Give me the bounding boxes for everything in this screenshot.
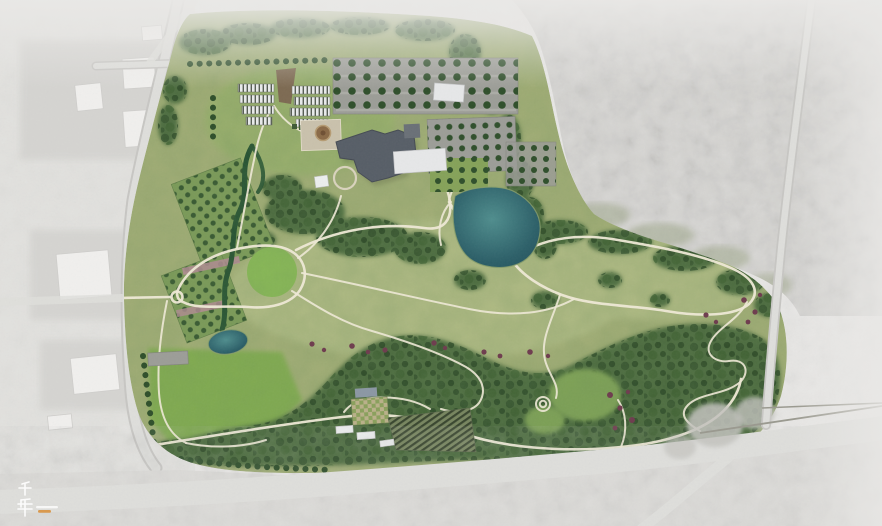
- watermark-accent-mark: [38, 510, 51, 513]
- watermark-subtext-mark: [36, 506, 58, 508]
- watermark-glyphs: [16, 480, 86, 520]
- watermark-logo: 千年: [16, 480, 86, 520]
- right-fade: [795, 0, 882, 526]
- aerial-master-plan-rendering: 千年: [0, 0, 882, 526]
- top-fade: [0, 0, 882, 88]
- site-plan-canvas: [0, 0, 882, 526]
